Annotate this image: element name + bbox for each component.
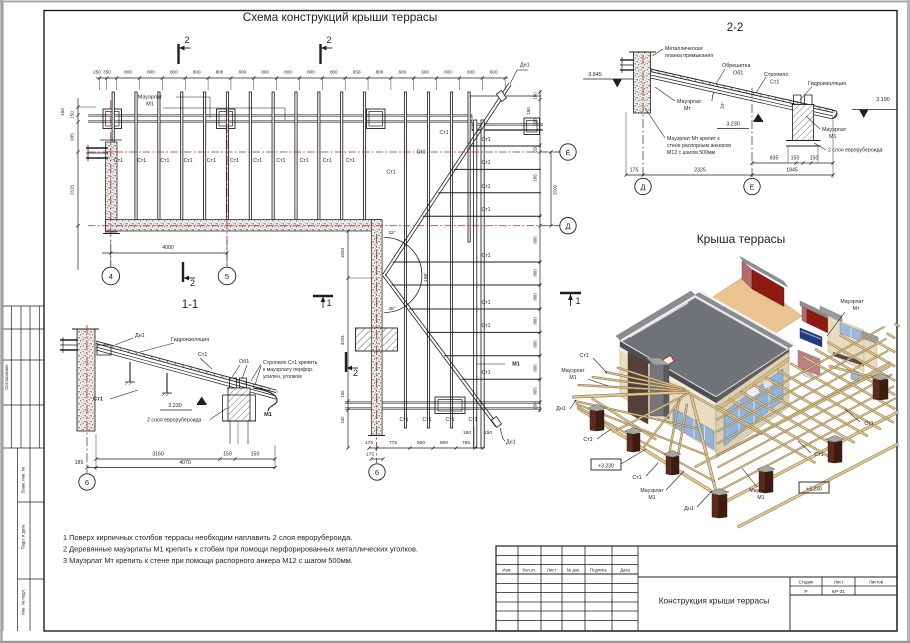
svg-text:Ст1: Ст1 <box>864 421 873 427</box>
svg-text:175: 175 <box>365 440 373 446</box>
svg-text:6: 6 <box>375 468 379 477</box>
svg-text:Ст1: Ст1 <box>323 158 332 164</box>
svg-text:800: 800 <box>261 70 269 75</box>
svg-text:Обрешетка: Обрешетка <box>722 63 750 69</box>
svg-text:Ст1: Ст1 <box>93 397 103 403</box>
svg-text:усилен. уголком: усилен. уголком <box>263 374 302 380</box>
svg-text:800: 800 <box>533 293 538 301</box>
svg-text:Мауэрлат: Мауэрлат <box>561 368 585 374</box>
svg-text:Ст1: Ст1 <box>770 80 779 86</box>
svg-text:Мауэрлат: Мауэрлат <box>138 95 163 101</box>
svg-text:6: 6 <box>85 478 89 487</box>
svg-text:Гидроизоляция: Гидроизоляция <box>171 337 209 343</box>
svg-text:755: 755 <box>533 118 538 126</box>
svg-text:Ст1: Ст1 <box>481 184 490 190</box>
svg-text:2315: 2315 <box>70 184 75 195</box>
svg-text:600: 600 <box>490 70 498 75</box>
svg-text:Ст1: Ст1 <box>207 158 216 164</box>
svg-text:Ст1: Ст1 <box>300 158 309 164</box>
svg-text:Кол.уч.: Кол.уч. <box>522 568 536 573</box>
svg-text:Ст1: Ст1 <box>814 452 823 458</box>
svg-text:Р: Р <box>804 589 807 595</box>
svg-text:2: 2 <box>184 35 189 45</box>
svg-text:36°: 36° <box>388 306 395 312</box>
svg-text:800: 800 <box>533 340 538 348</box>
svg-text:250: 250 <box>93 70 101 75</box>
svg-text:Стадия: Стадия <box>799 580 814 585</box>
svg-text:800: 800 <box>124 70 132 75</box>
svg-text:Дн1: Дн1 <box>556 406 566 412</box>
svg-text:КР-31: КР-31 <box>832 589 845 595</box>
svg-text:Ст1: Ст1 <box>481 300 490 306</box>
svg-text:Ст1: Ст1 <box>481 323 490 329</box>
svg-text:М1: М1 <box>648 495 655 501</box>
svg-text:Металлическая: Металлическая <box>665 46 703 52</box>
svg-text:2 слоя еврорубероида: 2 слоя еврорубероида <box>147 418 202 424</box>
svg-text:Мауэрлат Мт крепит к: Мауэрлат Мт крепит к <box>667 136 720 142</box>
svg-text:350: 350 <box>103 70 111 75</box>
svg-text:4070: 4070 <box>179 460 191 466</box>
svg-text:935: 935 <box>70 133 75 141</box>
svg-text:150: 150 <box>60 108 65 116</box>
svg-text:2: 2 <box>353 368 358 378</box>
svg-text:1: 1 <box>326 298 331 308</box>
svg-text:150: 150 <box>791 156 800 162</box>
svg-text:2: 2 <box>190 278 195 288</box>
svg-text:Д: Д <box>641 185 646 192</box>
svg-text:800: 800 <box>417 440 425 446</box>
svg-text:600: 600 <box>444 70 452 75</box>
svg-text:Дн1: Дн1 <box>684 506 694 512</box>
svg-text:800: 800 <box>533 269 538 277</box>
svg-text:Ст1: Ст1 <box>481 253 490 259</box>
svg-text:Ст1: Ст1 <box>422 417 431 423</box>
svg-text:4291: 4291 <box>340 334 345 345</box>
svg-text:Ст1: Ст1 <box>276 158 285 164</box>
svg-text:Подп. и дата: Подп. и дата <box>21 524 26 549</box>
svg-text:Ст1: Ст1 <box>198 352 207 358</box>
svg-text:2500: 2500 <box>553 184 558 195</box>
svg-text:Ст1: Ст1 <box>230 158 239 164</box>
svg-text:1 Поверх кирпичных столбов тер: 1 Поверх кирпичных столбов террасы необх… <box>63 533 352 542</box>
svg-text:3 Мауэрлат Мт крепить к стене: 3 Мауэрлат Мт крепить к стене при помощи… <box>63 556 353 565</box>
svg-text:Мт: Мт <box>853 306 860 312</box>
svg-text:795: 795 <box>462 440 470 446</box>
svg-text:800: 800 <box>239 70 247 75</box>
svg-text:М12 с шагом 500мм: М12 с шагом 500мм <box>667 150 716 156</box>
svg-text:Мауэрлат: Мауэрлат <box>640 488 664 494</box>
svg-text:800: 800 <box>147 70 155 75</box>
svg-text:Ст1: Ст1 <box>632 475 641 481</box>
svg-text:2 Деревянные мауэрлаты М1 креп: 2 Деревянные мауэрлаты М1 крепить к стоб… <box>63 545 418 554</box>
svg-text:Стропило Ст1 крепить: Стропило Ст1 крепить <box>263 360 318 366</box>
svg-text:Согласовано: Согласовано <box>4 364 9 390</box>
svg-text:Д: Д <box>566 224 571 231</box>
svg-text:175: 175 <box>366 452 374 458</box>
svg-text:Мт: Мт <box>684 106 691 112</box>
svg-text:150: 150 <box>251 452 260 458</box>
svg-text:Конструкция крыши террасы: Конструкция крыши террасы <box>659 596 770 606</box>
svg-text:800: 800 <box>284 70 292 75</box>
svg-text:Ст1: Ст1 <box>160 158 169 164</box>
svg-text:150: 150 <box>484 430 492 436</box>
svg-text:М1: М1 <box>264 412 272 418</box>
svg-text:3.230: 3.230 <box>726 122 740 128</box>
svg-text:2-2: 2-2 <box>727 22 744 34</box>
svg-text:150: 150 <box>340 390 345 398</box>
svg-text:М1: М1 <box>146 102 154 108</box>
svg-text:Ст1: Ст1 <box>445 417 454 423</box>
svg-text:Инв. № подл.: Инв. № подл. <box>21 589 26 615</box>
svg-text:Лист: Лист <box>547 568 556 573</box>
svg-text:Дн1: Дн1 <box>506 440 516 446</box>
svg-text:1845: 1845 <box>786 168 798 174</box>
svg-text:775: 775 <box>389 440 397 446</box>
svg-text:3160: 3160 <box>152 452 164 458</box>
svg-text:150: 150 <box>810 156 819 162</box>
svg-text:800: 800 <box>533 364 538 372</box>
svg-text:Изм.: Изм. <box>502 568 511 573</box>
svg-text:№ док.: № док. <box>567 568 581 573</box>
svg-text:Ст1: Ст1 <box>416 150 425 156</box>
svg-text:150: 150 <box>526 107 531 115</box>
svg-text:600: 600 <box>421 70 429 75</box>
svg-text:Взам. инв. №: Взам. инв. № <box>21 467 26 493</box>
svg-text:М1: М1 <box>569 375 576 381</box>
svg-text:Ст1: Ст1 <box>253 158 262 164</box>
svg-text:2325: 2325 <box>694 168 706 174</box>
svg-text:Ст1: Ст1 <box>439 130 448 136</box>
svg-text:108°: 108° <box>423 272 429 282</box>
svg-text:600: 600 <box>467 70 475 75</box>
svg-text:5: 5 <box>225 272 229 281</box>
svg-text:800: 800 <box>376 70 384 75</box>
svg-text:Мауэрлат: Мауэрлат <box>840 299 864 305</box>
svg-text:150: 150 <box>463 430 471 436</box>
svg-text:Ст1: Ст1 <box>114 158 123 164</box>
svg-text:3.190: 3.190 <box>876 97 890 103</box>
svg-text:1-1: 1-1 <box>182 299 199 311</box>
svg-text:Ст1: Ст1 <box>346 158 355 164</box>
svg-text:Подпись: Подпись <box>590 568 608 573</box>
svg-text:Стропило: Стропило <box>764 72 789 78</box>
svg-text:1: 1 <box>575 296 580 306</box>
svg-text:2: 2 <box>326 35 331 45</box>
svg-text:стене распорным анкером: стене распорным анкером <box>667 143 731 149</box>
svg-text:к мауэрлату перфор.: к мауэрлату перфор. <box>263 367 313 373</box>
svg-text:Дата: Дата <box>620 568 630 573</box>
svg-text:33°: 33° <box>388 230 395 236</box>
svg-text:150: 150 <box>70 111 75 119</box>
svg-text:Ст1: Ст1 <box>184 158 193 164</box>
svg-text:Е: Е <box>750 185 755 192</box>
svg-text:Ст1: Ст1 <box>137 158 146 164</box>
svg-text:1834: 1834 <box>340 247 345 258</box>
svg-text:Дн1: Дн1 <box>520 63 530 69</box>
svg-text:планка примыкания: планка примыкания <box>665 53 713 59</box>
svg-text:185: 185 <box>533 174 538 182</box>
svg-text:800: 800 <box>193 70 201 75</box>
svg-text:4: 4 <box>109 272 113 281</box>
svg-text:800: 800 <box>533 236 538 244</box>
svg-text:Ст1: Ст1 <box>481 137 490 143</box>
svg-text:800: 800 <box>307 70 315 75</box>
svg-text:Листов: Листов <box>869 580 884 585</box>
svg-text:Ст1: Ст1 <box>481 370 490 376</box>
svg-text:Ст1: Ст1 <box>481 160 490 166</box>
svg-text:185: 185 <box>75 460 84 466</box>
svg-text:Об1: Об1 <box>733 71 743 77</box>
svg-text:805: 805 <box>533 387 538 395</box>
svg-text:Мауэрлат: Мауэрлат <box>822 127 847 133</box>
svg-text:Крыша террасы: Крыша террасы <box>697 232 786 246</box>
svg-text:Ст1: Ст1 <box>481 207 490 213</box>
svg-text:150: 150 <box>533 92 538 100</box>
svg-text:Е: Е <box>566 150 571 157</box>
svg-text:3.230: 3.230 <box>168 403 182 409</box>
svg-text:Мауэрлат: Мауэрлат <box>677 99 702 105</box>
svg-text:Об1: Об1 <box>239 359 249 365</box>
svg-text:+3.230: +3.230 <box>806 486 822 492</box>
svg-text:Гидроизоляция: Гидроизоляция <box>808 81 846 87</box>
svg-text:800: 800 <box>440 440 448 446</box>
svg-text:935: 935 <box>770 156 779 162</box>
svg-text:М1: М1 <box>512 362 520 368</box>
svg-text:Ст1: Ст1 <box>386 170 395 176</box>
svg-text:4000: 4000 <box>162 245 174 251</box>
svg-text:Ст1: Ст1 <box>579 353 588 359</box>
svg-text:2 слоя еврорубероида: 2 слоя еврорубероида <box>828 148 883 154</box>
svg-text:Ст1: Ст1 <box>583 437 592 443</box>
svg-text:150: 150 <box>533 402 538 410</box>
svg-text:175: 175 <box>630 168 639 174</box>
svg-text:Лист: Лист <box>834 580 843 585</box>
svg-text:М1: М1 <box>757 495 764 501</box>
svg-text:620: 620 <box>533 145 538 153</box>
svg-text:М1: М1 <box>829 134 837 140</box>
svg-text:800: 800 <box>216 70 224 75</box>
svg-text:Ст1: Ст1 <box>468 417 477 423</box>
svg-text:Ст1: Ст1 <box>399 417 408 423</box>
svg-text:+3.230: +3.230 <box>598 463 614 469</box>
svg-text:150: 150 <box>223 452 232 458</box>
svg-text:150: 150 <box>340 416 345 424</box>
svg-text:Дн1: Дн1 <box>135 333 145 339</box>
svg-text:600: 600 <box>398 70 406 75</box>
svg-text:800: 800 <box>170 70 178 75</box>
svg-text:800: 800 <box>533 317 538 325</box>
svg-text:3.845: 3.845 <box>588 72 602 78</box>
svg-text:650: 650 <box>353 70 361 75</box>
svg-text:800: 800 <box>330 70 338 75</box>
svg-text:Мауэрлат: Мауэрлат <box>749 488 773 494</box>
svg-text:Схема конструкций крыши террас: Схема конструкций крыши террасы <box>243 10 438 24</box>
